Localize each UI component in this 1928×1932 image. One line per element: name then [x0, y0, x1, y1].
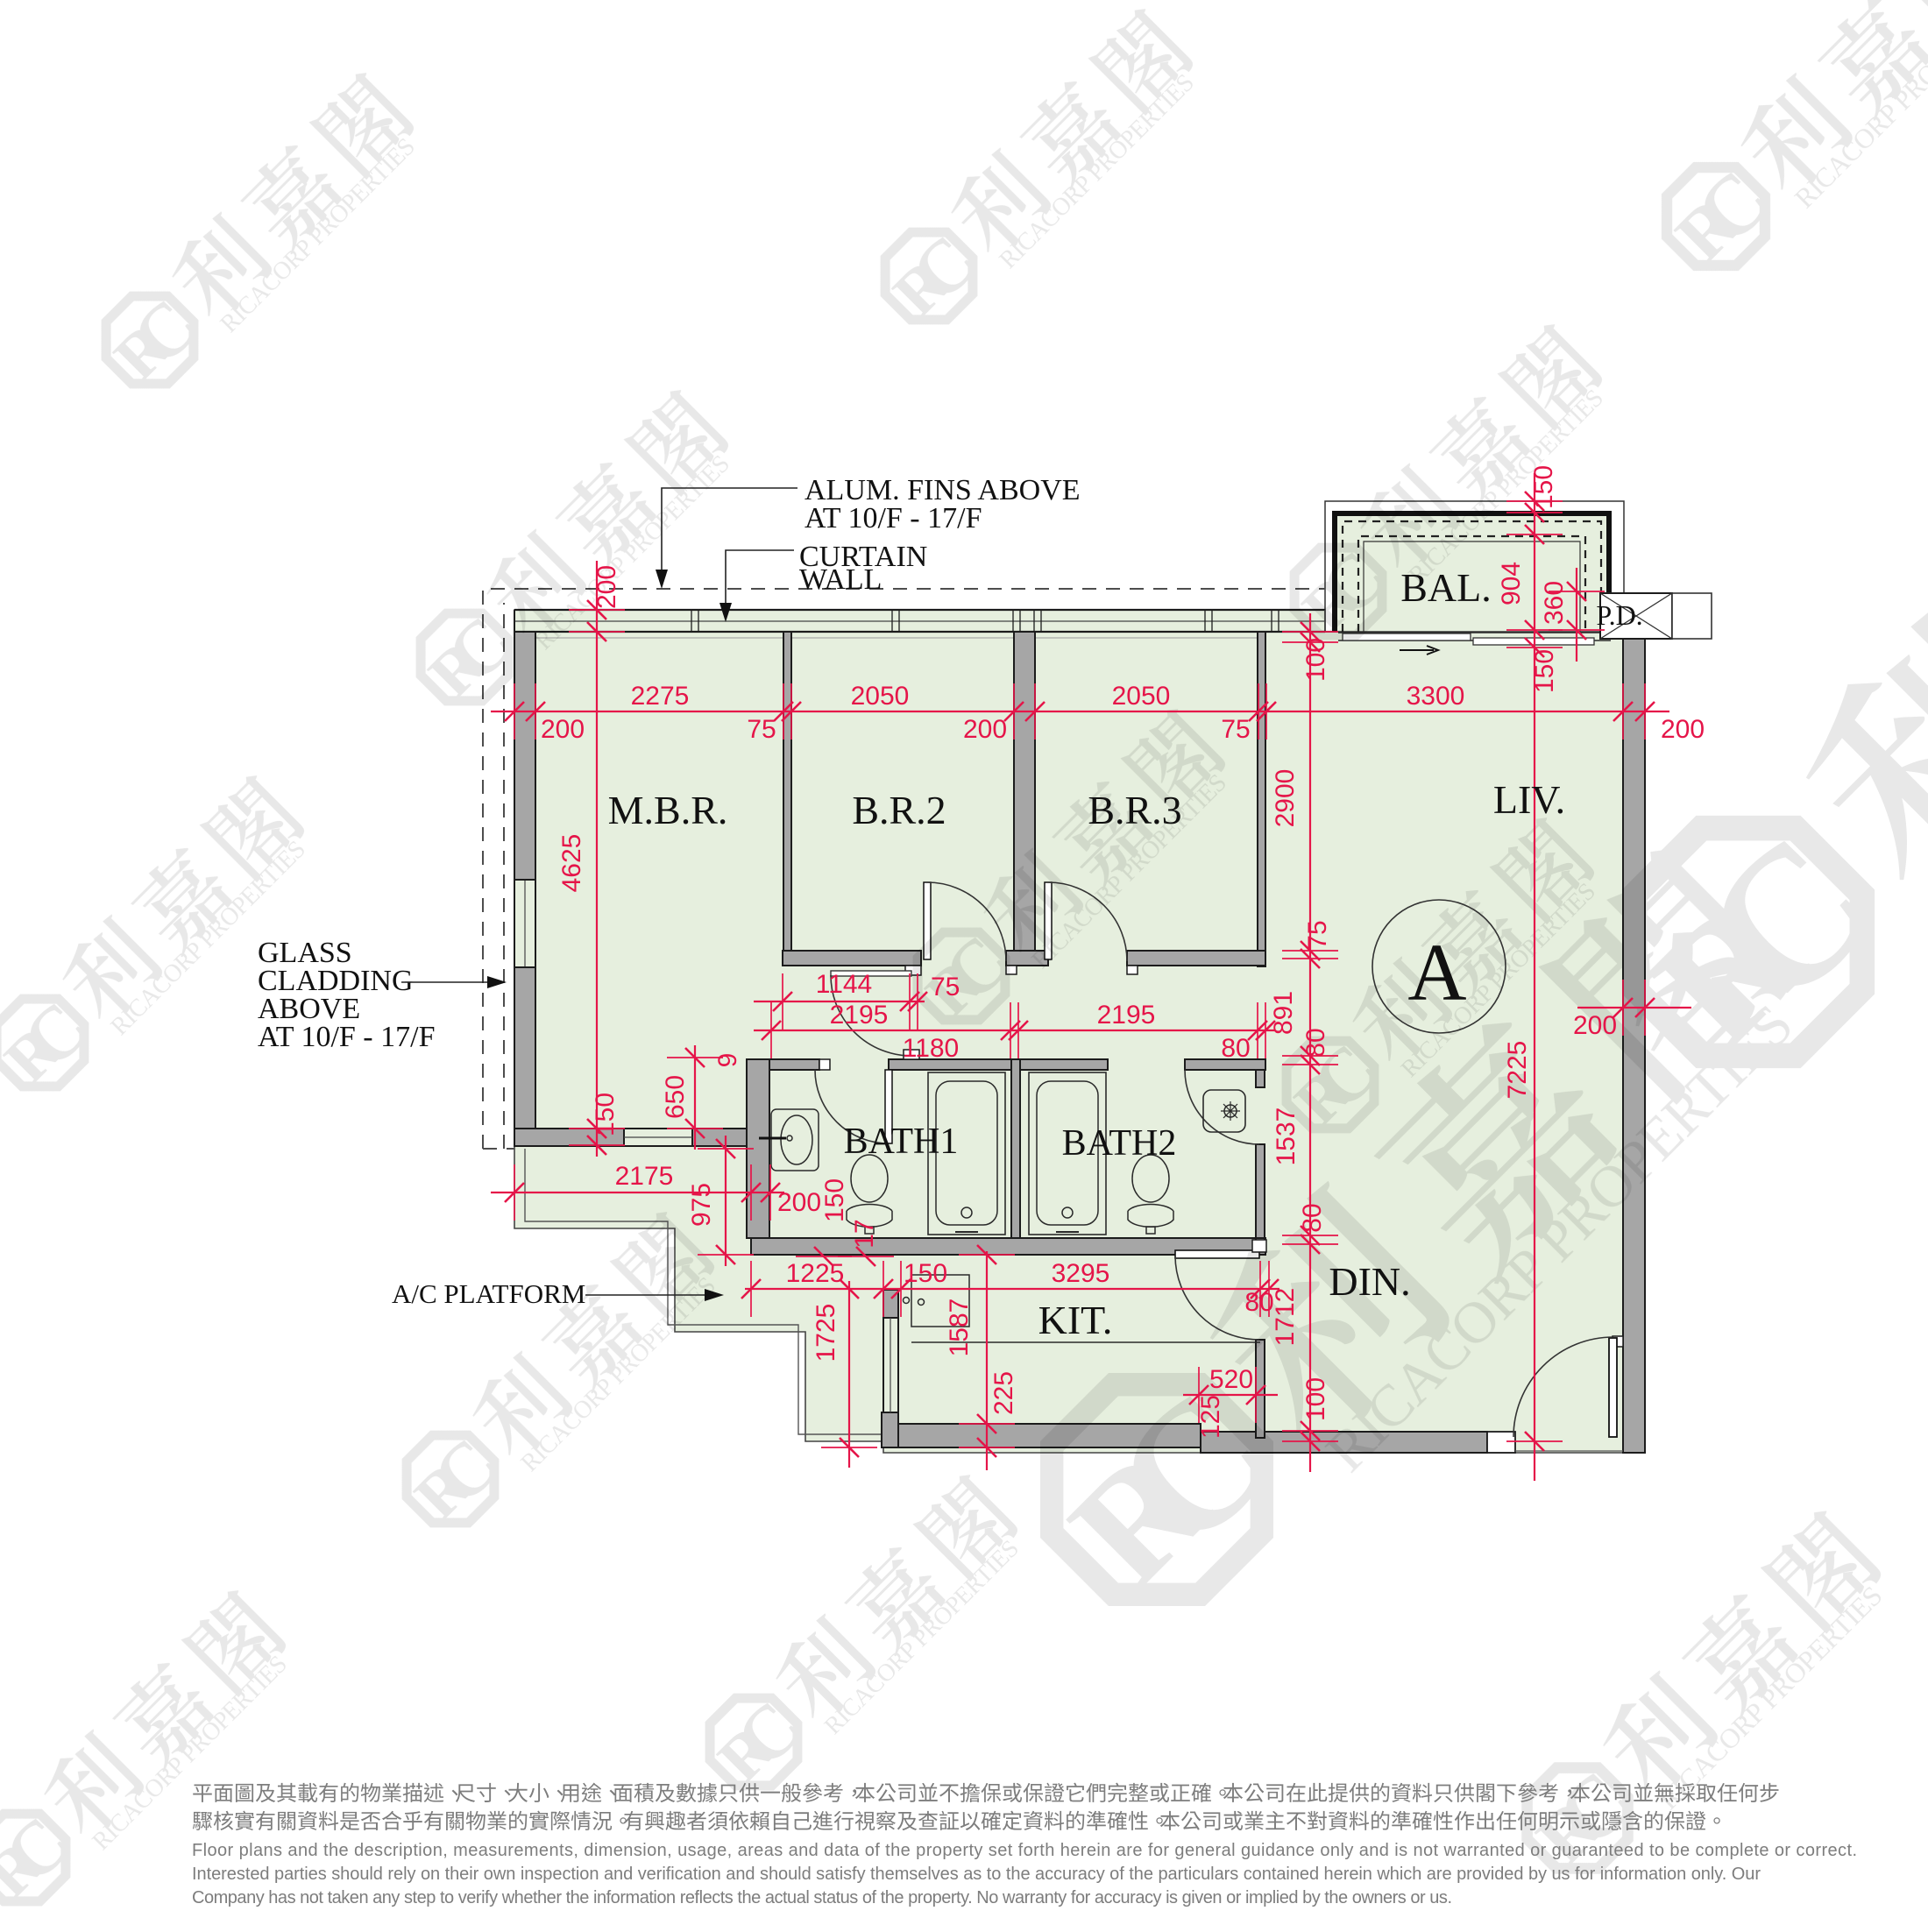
svg-text:200: 200	[541, 715, 585, 744]
svg-text:Interested parties should rely: Interested parties should rely on their …	[192, 1865, 1761, 1884]
svg-text:891: 891	[1269, 991, 1298, 1035]
svg-text:904: 904	[1497, 562, 1526, 605]
svg-text:75: 75	[931, 973, 960, 1001]
svg-text:975: 975	[687, 1183, 716, 1227]
svg-text:150: 150	[904, 1259, 947, 1288]
svg-text:1537: 1537	[1272, 1108, 1301, 1166]
svg-text:A/C PLATFORM: A/C PLATFORM	[392, 1278, 585, 1309]
svg-text:17: 17	[850, 1219, 879, 1248]
svg-text:3300: 3300	[1407, 682, 1465, 711]
svg-text:BAL.: BAL.	[1400, 565, 1492, 610]
svg-text:650: 650	[661, 1075, 690, 1119]
svg-text:7225: 7225	[1503, 1041, 1532, 1100]
svg-text:200: 200	[963, 715, 1007, 744]
svg-text:80: 80	[1244, 1288, 1273, 1317]
svg-text:1225: 1225	[786, 1259, 845, 1288]
svg-text:80: 80	[1301, 1028, 1330, 1057]
svg-text:200: 200	[1661, 715, 1705, 744]
svg-text:LIV.: LIV.	[1493, 777, 1565, 822]
svg-text:4625: 4625	[557, 834, 586, 893]
svg-text:75: 75	[747, 715, 776, 744]
svg-text:WALL: WALL	[799, 563, 882, 596]
svg-text:150: 150	[591, 1093, 620, 1136]
svg-text:150: 150	[1530, 649, 1559, 693]
svg-text:2195: 2195	[830, 1001, 889, 1030]
svg-text:3295: 3295	[1052, 1259, 1110, 1288]
svg-text:BATH2: BATH2	[1062, 1123, 1177, 1164]
svg-text:225: 225	[989, 1371, 1018, 1415]
svg-text:520: 520	[1209, 1365, 1253, 1394]
svg-text:KIT.: KIT.	[1038, 1298, 1113, 1342]
svg-text:80: 80	[1298, 1203, 1327, 1232]
svg-text:2175: 2175	[615, 1162, 674, 1191]
svg-text:1587: 1587	[945, 1299, 974, 1357]
svg-text:2275: 2275	[631, 682, 690, 711]
svg-text:BATH1: BATH1	[844, 1122, 959, 1162]
svg-text:Company has not taken any step: Company has not taken any step to verify…	[192, 1888, 1452, 1907]
svg-text:150: 150	[1529, 465, 1558, 509]
svg-text:2050: 2050	[851, 682, 910, 711]
svg-text:100: 100	[1301, 638, 1330, 682]
svg-text:B.R.2: B.R.2	[852, 788, 946, 832]
svg-text:P.D.: P.D.	[1596, 599, 1642, 631]
svg-text:B.R.3: B.R.3	[1088, 788, 1181, 832]
svg-text:DIN.: DIN.	[1329, 1259, 1410, 1304]
svg-text:360: 360	[1540, 581, 1569, 625]
svg-text:200: 200	[777, 1188, 821, 1217]
svg-text:200: 200	[592, 565, 621, 609]
svg-text:AT 10/F - 17/F: AT 10/F - 17/F	[258, 1021, 435, 1053]
svg-text:1180: 1180	[903, 1034, 960, 1063]
svg-text:A: A	[1407, 928, 1466, 1018]
svg-text:1725: 1725	[812, 1304, 840, 1362]
svg-text:2195: 2195	[1097, 1001, 1156, 1030]
svg-text:1712: 1712	[1271, 1288, 1300, 1347]
svg-text:M.B.R.: M.B.R.	[608, 788, 728, 832]
svg-text:2900: 2900	[1271, 769, 1300, 828]
svg-text:75: 75	[1303, 920, 1332, 949]
svg-text:2050: 2050	[1112, 682, 1171, 711]
svg-text:9: 9	[713, 1053, 742, 1068]
svg-text:125: 125	[1196, 1395, 1225, 1439]
svg-text:200: 200	[1573, 1011, 1617, 1040]
svg-text:80: 80	[1221, 1034, 1250, 1063]
svg-text:75: 75	[1221, 715, 1250, 744]
svg-text:100: 100	[1301, 1377, 1330, 1421]
svg-text:1144: 1144	[816, 970, 873, 999]
svg-text:AT 10/F - 17/F: AT 10/F - 17/F	[805, 502, 982, 534]
svg-text:Floor plans and the descriptio: Floor plans and the description, measure…	[192, 1841, 1857, 1860]
svg-text:150: 150	[820, 1178, 849, 1222]
